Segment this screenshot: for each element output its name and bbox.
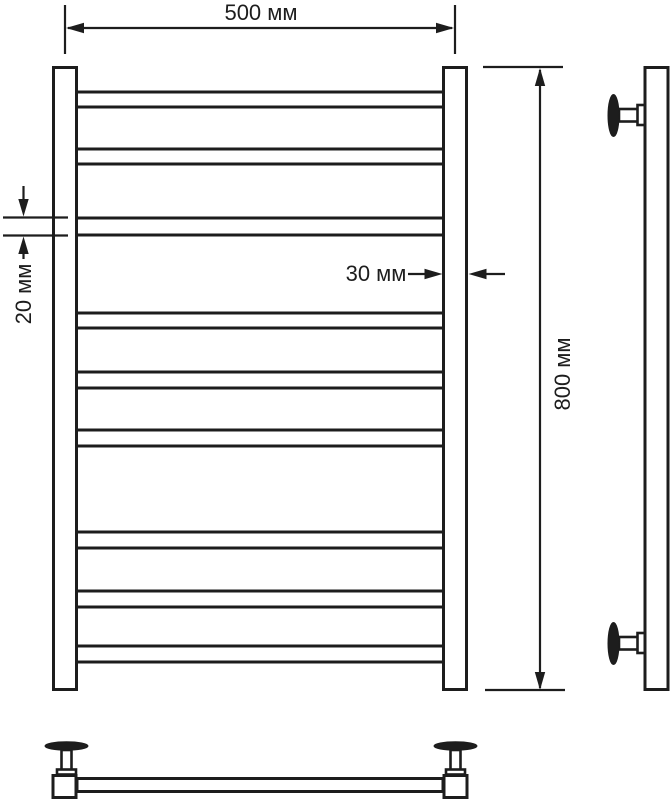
wall-mount-top [608,95,646,137]
bottom-mount-right [434,742,477,775]
dimension-post-width: 30 мм [346,261,505,286]
side-post [645,68,668,690]
bottom-bar [77,779,443,792]
arrow-right-icon [425,269,443,279]
mount-flange-icon [608,95,619,137]
tube-dimension-label: 20 мм [11,264,36,325]
arrow-up-icon [18,237,28,255]
mount-stem [62,750,72,771]
mount-flange-icon [45,742,88,750]
bottom-right-block [444,776,467,798]
rung-set [72,92,448,662]
mount-collar [446,770,465,775]
front-left-post [54,68,77,690]
wall-mount-bottom [608,623,646,665]
side-view [608,68,668,690]
arrow-down-icon [535,672,545,690]
bottom-mount-left [45,742,88,775]
post-dimension-label: 30 мм [346,261,407,286]
towel-rail-technical-drawing: 500 мм 800 мм 20 мм 30 мм [0,0,670,800]
arrow-down-icon [18,199,28,217]
mount-flange-icon [608,623,619,665]
arrow-right-icon [436,23,454,33]
mount-flange-icon [434,742,477,750]
arrow-up-icon [535,68,545,86]
drawing-page: 500 мм 800 мм 20 мм 30 мм [0,0,670,800]
height-dimension-label: 800 мм [550,337,575,410]
front-view [54,68,467,690]
front-right-post [444,68,467,690]
mount-stem [451,750,461,771]
arrow-left-icon [66,23,84,33]
dimension-overall-width: 500 мм [65,0,455,54]
bottom-left-block [53,776,76,798]
mount-collar [57,770,76,775]
width-dimension-label: 500 мм [224,0,297,25]
dimension-overall-height: 800 мм [483,67,575,690]
arrow-left-icon [469,269,487,279]
bottom-view [45,742,477,798]
